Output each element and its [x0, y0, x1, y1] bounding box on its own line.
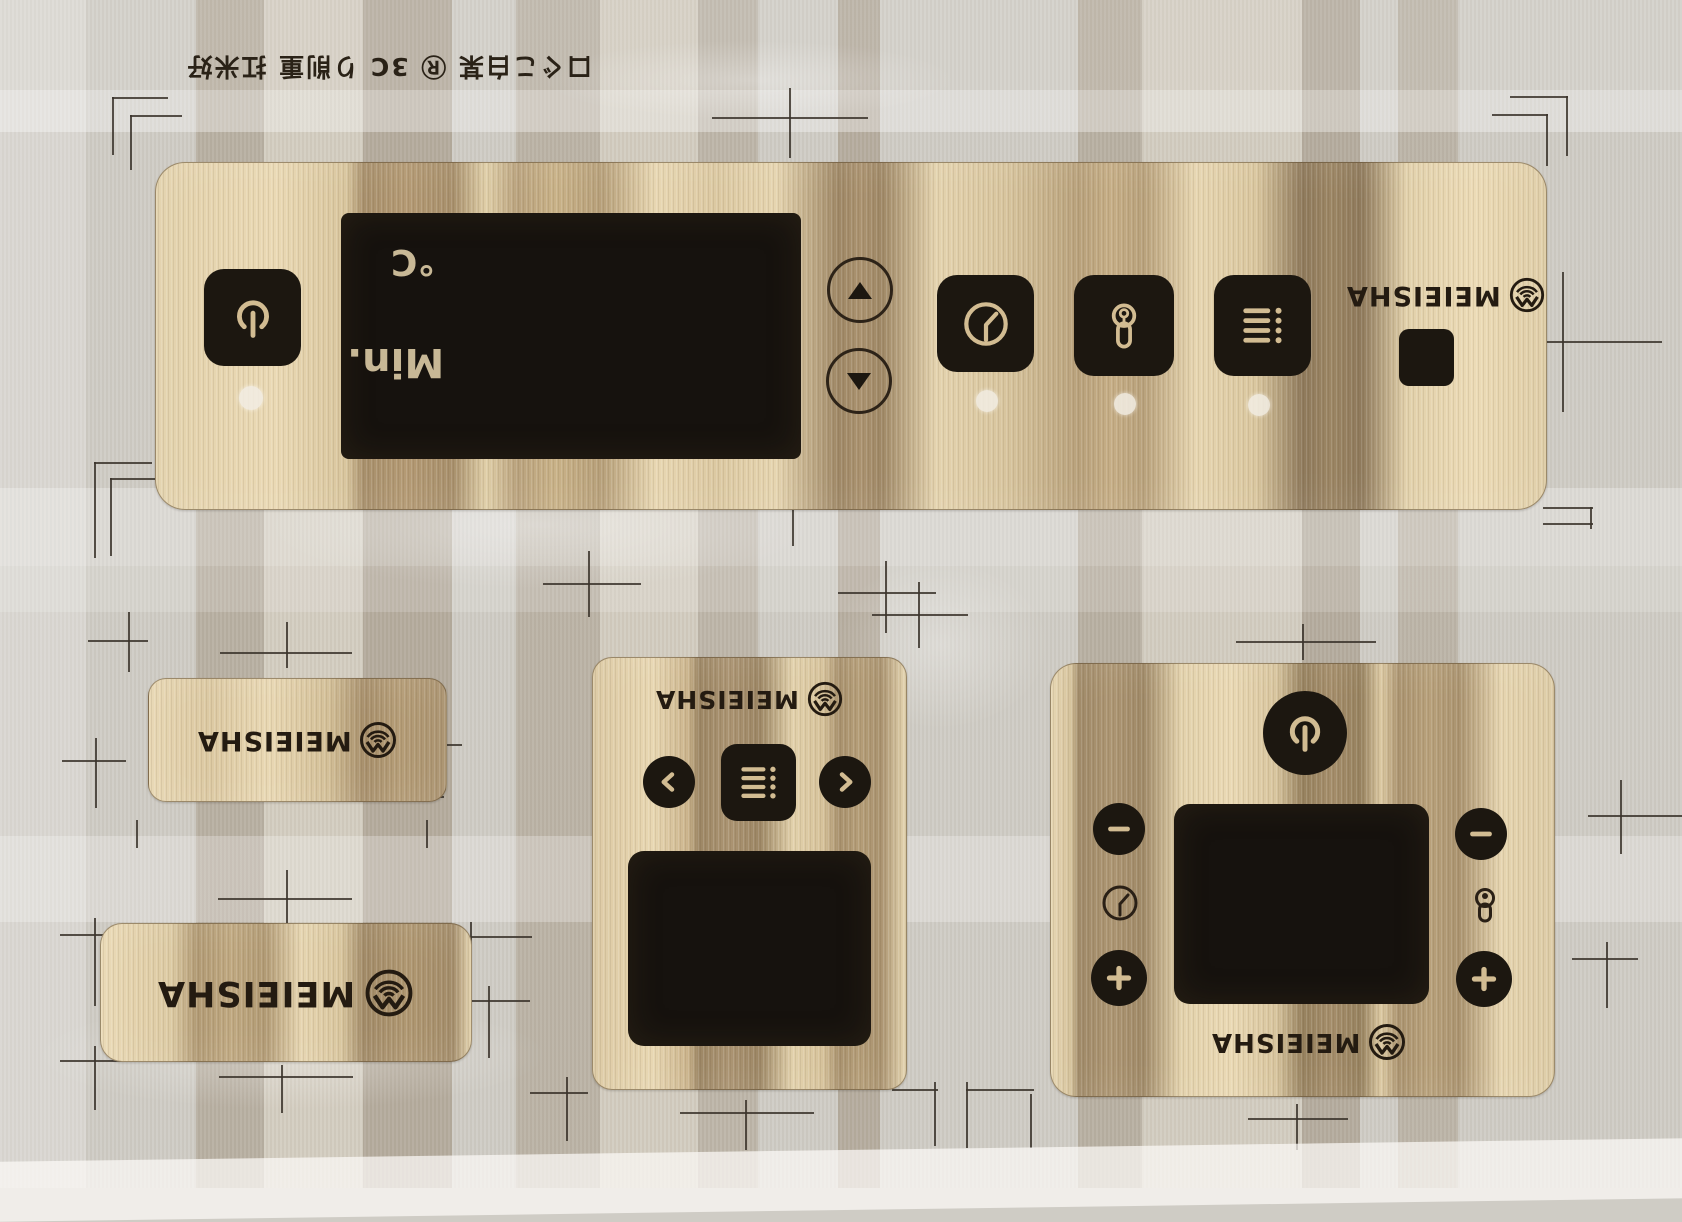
display-temp-unit: °C	[391, 241, 435, 282]
brand-wordmark: MEIEISHA	[1211, 1027, 1360, 1057]
registration-mark	[94, 1046, 96, 1110]
display-minutes-label: Min.	[347, 339, 444, 385]
registration-mark	[1572, 958, 1638, 960]
registration-mark	[488, 986, 490, 1058]
registration-mark	[1510, 96, 1568, 98]
minus-button-left[interactable]	[1093, 803, 1145, 855]
triangle-down-icon	[847, 373, 871, 390]
triangle-up-icon	[848, 282, 872, 299]
plus-button-right[interactable]	[1456, 951, 1512, 1007]
timer-button[interactable]	[937, 275, 1034, 372]
registration-mark	[1546, 114, 1548, 166]
meieisha-emblem-icon	[806, 680, 844, 718]
plus-button-left[interactable]	[1091, 950, 1147, 1006]
minus-button-right[interactable]	[1455, 808, 1507, 860]
clock-icon	[956, 294, 1016, 354]
display-window	[1174, 804, 1429, 1004]
registration-mark	[1236, 641, 1376, 643]
minus-icon	[1102, 812, 1136, 846]
registration-mark	[1620, 780, 1622, 854]
registration-mark	[680, 1112, 814, 1114]
main-control-panel-decal: °C Min.	[155, 162, 1547, 510]
key-icon	[1094, 296, 1154, 356]
registration-mark	[838, 592, 936, 594]
registration-mark	[530, 1092, 588, 1094]
display-window	[628, 851, 871, 1046]
registration-mark	[1492, 114, 1548, 116]
menu-button[interactable]	[1214, 275, 1311, 376]
indicator-dot	[239, 386, 263, 410]
power-button[interactable]	[1263, 691, 1347, 775]
film-bottom-edge	[0, 1138, 1682, 1222]
minus-icon	[1464, 817, 1498, 851]
registration-mark	[130, 115, 182, 117]
menu-list-icon	[1234, 297, 1292, 355]
registration-mark	[872, 614, 968, 616]
large-brand-label-decal: MEIEISHA	[100, 923, 472, 1062]
registration-mark	[281, 1065, 283, 1113]
registration-mark	[1606, 942, 1608, 1008]
power-icon	[222, 287, 284, 349]
registration-mark	[128, 612, 130, 672]
brand-wordmark: MEIEISHA	[157, 973, 355, 1013]
registration-mark	[62, 760, 126, 762]
registration-mark	[1588, 815, 1682, 817]
registration-mark	[1566, 96, 1568, 156]
registration-mark	[588, 551, 590, 617]
power-button[interactable]	[204, 269, 301, 366]
indicator-dot	[1114, 393, 1136, 415]
meieisha-emblem-icon	[363, 967, 415, 1019]
registration-mark	[95, 738, 97, 808]
right-control-panel-decal: MEIEISHA	[1050, 663, 1555, 1097]
small-brand-label-decal: MEIEISHA	[148, 678, 447, 802]
indicator-dot	[976, 390, 998, 412]
center-control-panel-decal: MEIEISHA	[592, 657, 907, 1090]
meieisha-emblem-icon	[1367, 1022, 1407, 1062]
registration-mark	[88, 640, 148, 642]
registration-mark	[110, 478, 112, 556]
production-marking-text: 口ぐこ白某 Ⓡ 3C り削重 扛米好	[185, 52, 592, 81]
meieisha-logo: MEIEISHA	[593, 680, 906, 718]
registration-mark	[1248, 1118, 1348, 1120]
registration-mark	[286, 622, 288, 668]
registration-mark	[1030, 1094, 1032, 1148]
registration-mark	[130, 115, 132, 170]
registration-mark	[219, 1076, 353, 1078]
registration-mark	[543, 583, 641, 585]
down-button[interactable]	[826, 348, 892, 414]
registration-mark	[112, 97, 168, 99]
registration-mark	[934, 1082, 936, 1146]
indicator-dot	[1248, 394, 1270, 416]
registration-mark	[94, 462, 152, 464]
chevron-left-icon	[654, 767, 684, 797]
registration-mark	[218, 898, 352, 900]
registration-mark	[566, 1077, 568, 1141]
brand-wordmark: MEIEISHA	[197, 725, 352, 756]
registration-mark	[1562, 272, 1564, 412]
menu-button[interactable]	[721, 744, 796, 821]
keyhole-icon	[1463, 884, 1507, 928]
registration-mark	[892, 1089, 938, 1091]
registration-mark	[966, 1089, 1034, 1091]
up-button[interactable]	[827, 257, 893, 323]
registration-mark	[885, 561, 887, 633]
film-seam	[0, 566, 1682, 612]
registration-mark	[789, 88, 791, 158]
glare	[540, 40, 960, 120]
meieisha-logo: MEIEISHA	[1346, 275, 1546, 315]
meieisha-emblem-icon	[1508, 276, 1546, 314]
registration-mark	[1543, 523, 1593, 525]
registration-mark	[286, 870, 288, 930]
lock-button[interactable]	[1074, 275, 1174, 376]
registration-mark	[94, 918, 96, 1006]
registration-mark	[1543, 507, 1593, 509]
production-marking: 口ぐこ白某 Ⓡ 3C り削重 扛米好	[262, 50, 592, 86]
registration-mark	[1528, 341, 1662, 343]
registration-mark	[94, 462, 96, 558]
registration-mark	[112, 97, 114, 155]
registration-mark	[426, 820, 428, 848]
clock-icon	[1098, 881, 1142, 925]
registration-mark	[136, 820, 138, 848]
registration-mark	[1590, 507, 1592, 529]
registration-mark	[1296, 1104, 1298, 1150]
registration-mark	[470, 936, 532, 938]
registration-mark	[745, 1100, 747, 1150]
prev-button[interactable]	[643, 756, 695, 808]
film-seam	[0, 90, 1682, 132]
meieisha-emblem-icon	[358, 720, 398, 760]
display-window: °C Min.	[341, 213, 801, 459]
registration-mark	[1302, 624, 1304, 660]
blank-chip-window	[1399, 329, 1454, 386]
brand-wordmark: MEIEISHA	[1346, 280, 1501, 311]
power-icon	[1276, 704, 1334, 762]
menu-list-icon	[733, 757, 785, 809]
meieisha-logo: MEIEISHA	[197, 720, 399, 760]
meieisha-logo: MEIEISHA	[157, 967, 414, 1019]
plus-icon	[1465, 960, 1503, 998]
registration-mark	[966, 1082, 968, 1148]
plus-icon	[1100, 959, 1138, 997]
meieisha-logo: MEIEISHA	[1211, 1022, 1407, 1062]
next-button[interactable]	[819, 756, 871, 808]
film-seam	[0, 0, 86, 1188]
registration-mark	[918, 582, 920, 648]
chevron-right-icon	[830, 767, 860, 797]
brand-wordmark: MEIEISHA	[655, 685, 799, 714]
